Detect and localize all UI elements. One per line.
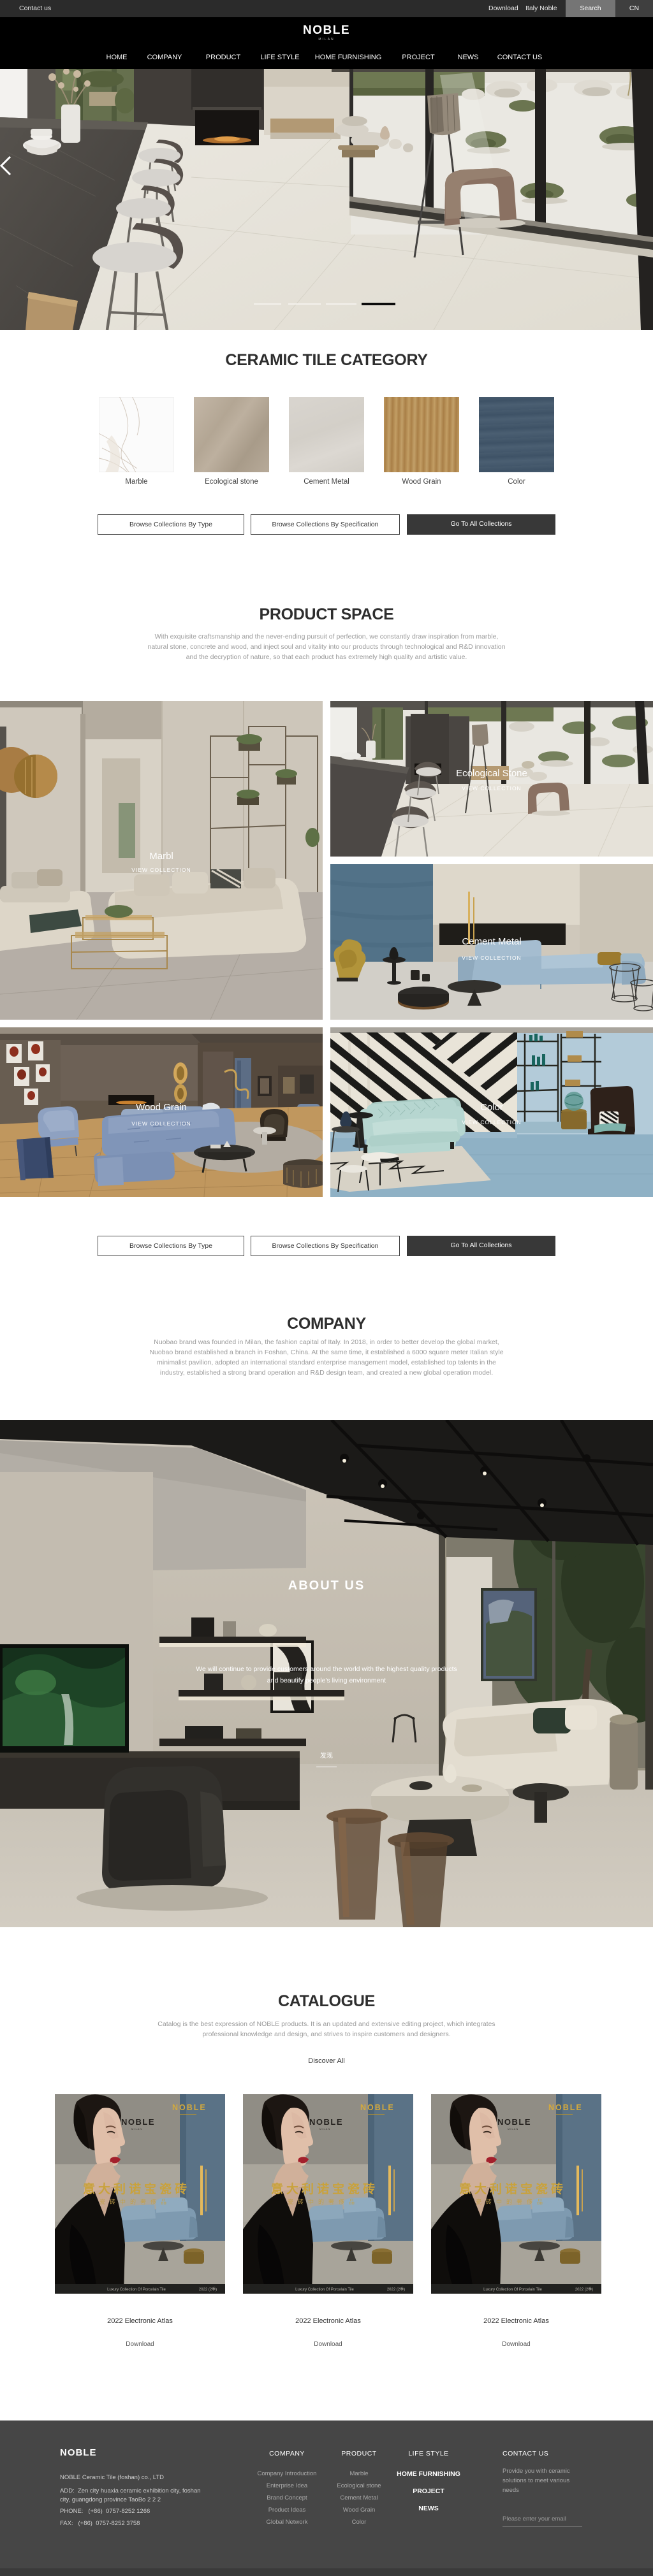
- svg-text:VIEW COLLECTION: VIEW COLLECTION: [131, 1120, 191, 1127]
- svg-text:Cement Metal: Cement Metal: [462, 936, 521, 947]
- svg-text:ABOUT US: ABOUT US: [288, 1579, 365, 1593]
- svg-text:Color: Color: [480, 1102, 503, 1113]
- svg-text:Ecological Stone: Ecological Stone: [456, 768, 527, 779]
- svg-text:发现: 发现: [320, 1751, 333, 1760]
- svg-text:We will continue to provide cu: We will continue to provide customers ar…: [196, 1665, 457, 1673]
- svg-text:Marbl: Marbl: [149, 851, 173, 862]
- svg-text:VIEW COLLECTION: VIEW COLLECTION: [462, 1119, 521, 1125]
- svg-text:VIEW COLLECTION: VIEW COLLECTION: [131, 867, 191, 873]
- svg-text:VIEW COLLECTION: VIEW COLLECTION: [462, 955, 521, 961]
- svg-text:VIEW COLLECTION: VIEW COLLECTION: [462, 785, 521, 792]
- svg-text:Wood Grain: Wood Grain: [136, 1102, 187, 1113]
- svg-text:and beautify people's living e: and beautify people's living environment: [267, 1677, 386, 1684]
